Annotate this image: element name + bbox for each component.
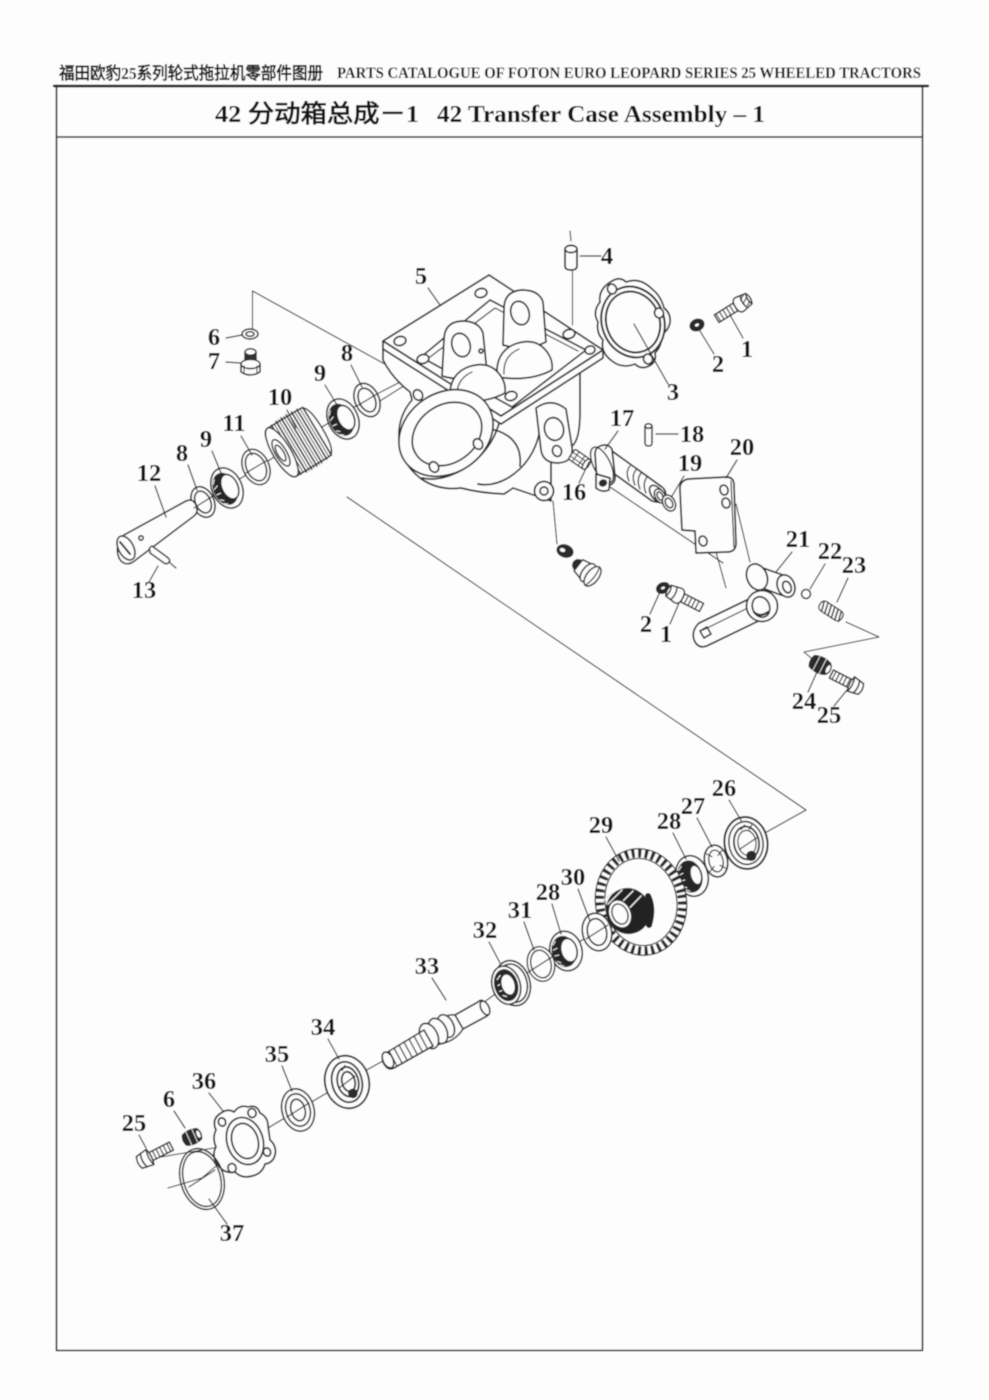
svg-text:22: 22 (818, 538, 843, 565)
svg-text:21: 21 (786, 526, 811, 553)
svg-text:25: 25 (122, 1110, 147, 1137)
svg-text:16: 16 (562, 479, 587, 506)
svg-text:36: 36 (192, 1068, 217, 1095)
svg-text:42 Transfer Case Assembly – 1: 42 Transfer Case Assembly – 1 (437, 101, 765, 128)
svg-text:12: 12 (137, 460, 162, 487)
svg-text:29: 29 (589, 812, 614, 839)
svg-text:1: 1 (660, 621, 672, 648)
svg-text:9: 9 (314, 360, 326, 387)
svg-text:24: 24 (792, 688, 817, 715)
svg-text:31: 31 (508, 897, 533, 924)
svg-text:25: 25 (817, 702, 842, 729)
svg-text:10: 10 (268, 384, 293, 411)
svg-text:1: 1 (741, 336, 753, 363)
svg-text:8: 8 (176, 440, 188, 467)
svg-text:9: 9 (200, 426, 212, 453)
svg-text:37: 37 (220, 1220, 245, 1247)
svg-text:2: 2 (712, 351, 724, 378)
svg-text:6: 6 (208, 324, 220, 351)
svg-text:7: 7 (208, 348, 220, 375)
svg-text:11: 11 (222, 410, 245, 437)
svg-text:13: 13 (132, 577, 157, 604)
svg-text:19: 19 (678, 450, 703, 477)
svg-text:5: 5 (415, 263, 427, 290)
svg-text:35: 35 (265, 1041, 290, 1068)
svg-text:福田欧豹25系列轮式拖拉机零部件图册: 福田欧豹25系列轮式拖拉机零部件图册 (58, 63, 323, 83)
svg-text:2: 2 (640, 611, 652, 638)
svg-text:28: 28 (657, 808, 682, 835)
svg-text:8: 8 (341, 340, 353, 367)
svg-text:18: 18 (680, 421, 705, 448)
svg-text:34: 34 (311, 1014, 336, 1041)
svg-text:17: 17 (610, 405, 635, 432)
svg-text:23: 23 (842, 552, 867, 579)
svg-text:33: 33 (415, 953, 440, 980)
svg-text:6: 6 (163, 1086, 175, 1113)
svg-text:20: 20 (730, 434, 755, 461)
svg-text:30: 30 (561, 864, 586, 891)
svg-text:27: 27 (681, 793, 706, 820)
svg-text:32: 32 (473, 917, 498, 944)
svg-text:26: 26 (712, 775, 737, 802)
svg-text:4: 4 (601, 243, 613, 270)
svg-text:42 分动箱总成－1: 42 分动箱总成－1 (215, 99, 419, 128)
svg-text:28: 28 (536, 879, 561, 906)
svg-text:3: 3 (667, 379, 679, 406)
svg-text:PARTS CATALOGUE OF FOTON EURO: PARTS CATALOGUE OF FOTON EURO LEOPARD SE… (337, 65, 921, 82)
